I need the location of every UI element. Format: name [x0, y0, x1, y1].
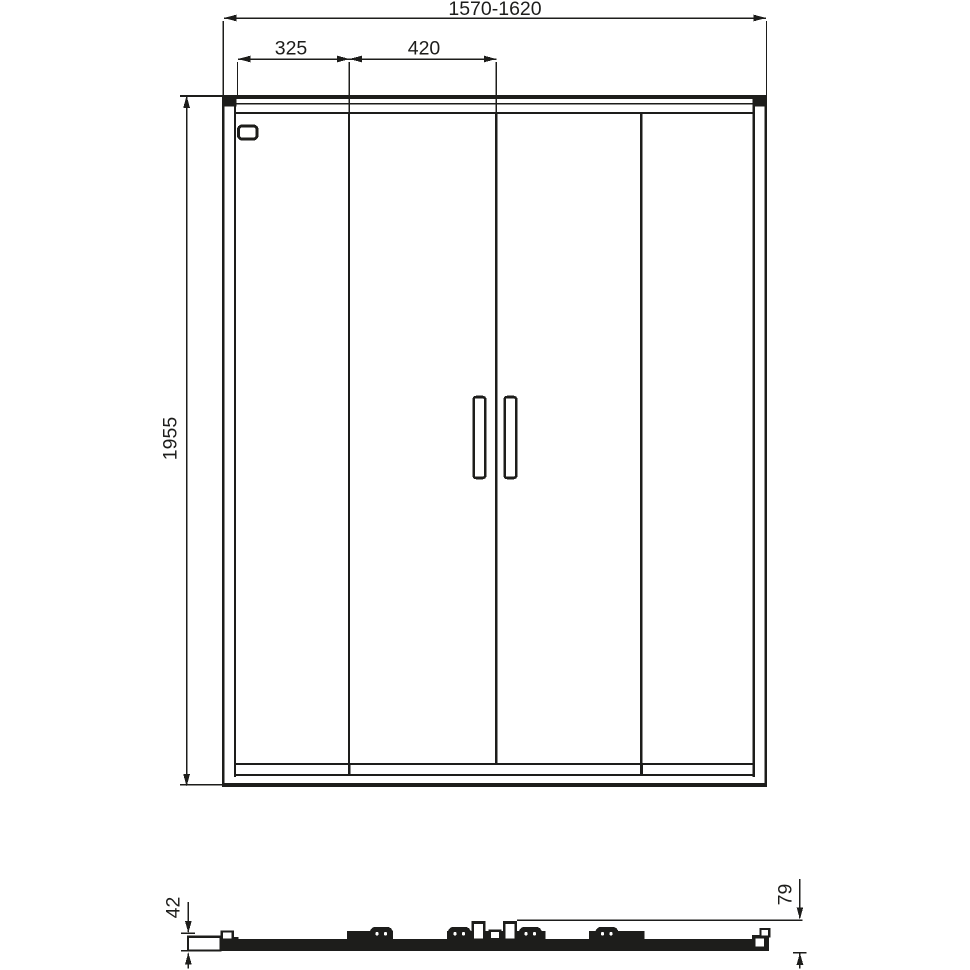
height-dimension-label: 1955	[160, 417, 182, 461]
total-width-dimension-label: 1570-1620	[448, 0, 541, 20]
left-handle-section	[473, 922, 485, 939]
height-dimension	[183, 96, 190, 787]
front-elevation-view	[180, 15, 767, 788]
arrowhead-up-icon	[797, 953, 804, 965]
door-handles	[474, 397, 517, 478]
right-bracket-nub	[760, 929, 769, 937]
arrowhead-right-icon	[337, 56, 350, 63]
arrowhead-right-icon	[754, 15, 767, 22]
drawing-canvas: 1570-1620 325 420 1955	[0, 0, 970, 970]
right-door-handle	[505, 397, 517, 478]
left-bracket-nub	[222, 931, 233, 939]
arrowhead-down-icon	[185, 921, 192, 933]
arrowhead-left-icon	[350, 56, 363, 63]
bottom-section-view	[181, 879, 807, 969]
roller	[370, 927, 393, 939]
handle-sections	[473, 922, 516, 939]
panel-width-dimensions	[237, 56, 497, 114]
left-door-handle	[474, 397, 486, 478]
glass-panels	[348, 114, 643, 764]
arrowhead-up-icon	[185, 953, 192, 965]
door-panel-width-dimension-label: 420	[408, 38, 441, 60]
panel-divider-center	[495, 114, 497, 764]
bottom-guide-right	[640, 764, 643, 775]
arrowhead-left-icon	[238, 56, 251, 63]
right-handle-section	[504, 922, 516, 939]
bottom-track-bar	[237, 939, 754, 951]
left-wall-profile	[222, 95, 225, 786]
arrowhead-down-icon	[797, 907, 804, 919]
roller	[448, 927, 471, 939]
center-guide-block	[490, 931, 501, 940]
left-wall-profile-section	[188, 937, 221, 951]
roller	[595, 927, 618, 939]
arrowhead-left-icon	[224, 15, 237, 22]
panel-divider-right	[640, 114, 642, 764]
arrowhead-up-icon	[183, 96, 190, 109]
roller	[519, 927, 542, 939]
panel-divider-left	[348, 114, 350, 764]
bottom-guide-left	[348, 764, 351, 775]
right-wall-profile	[765, 95, 768, 786]
wall-mount-clip	[239, 126, 258, 139]
profile-height-dimension-label: 42	[163, 897, 185, 919]
shower-door-technical-drawing: 1570-1620 325 420 1955	[0, 0, 970, 970]
fixed-panel-width-dimension-label: 325	[275, 38, 308, 60]
total-depth-dimension-label: 79	[775, 884, 797, 906]
arrowhead-right-icon	[484, 56, 497, 63]
